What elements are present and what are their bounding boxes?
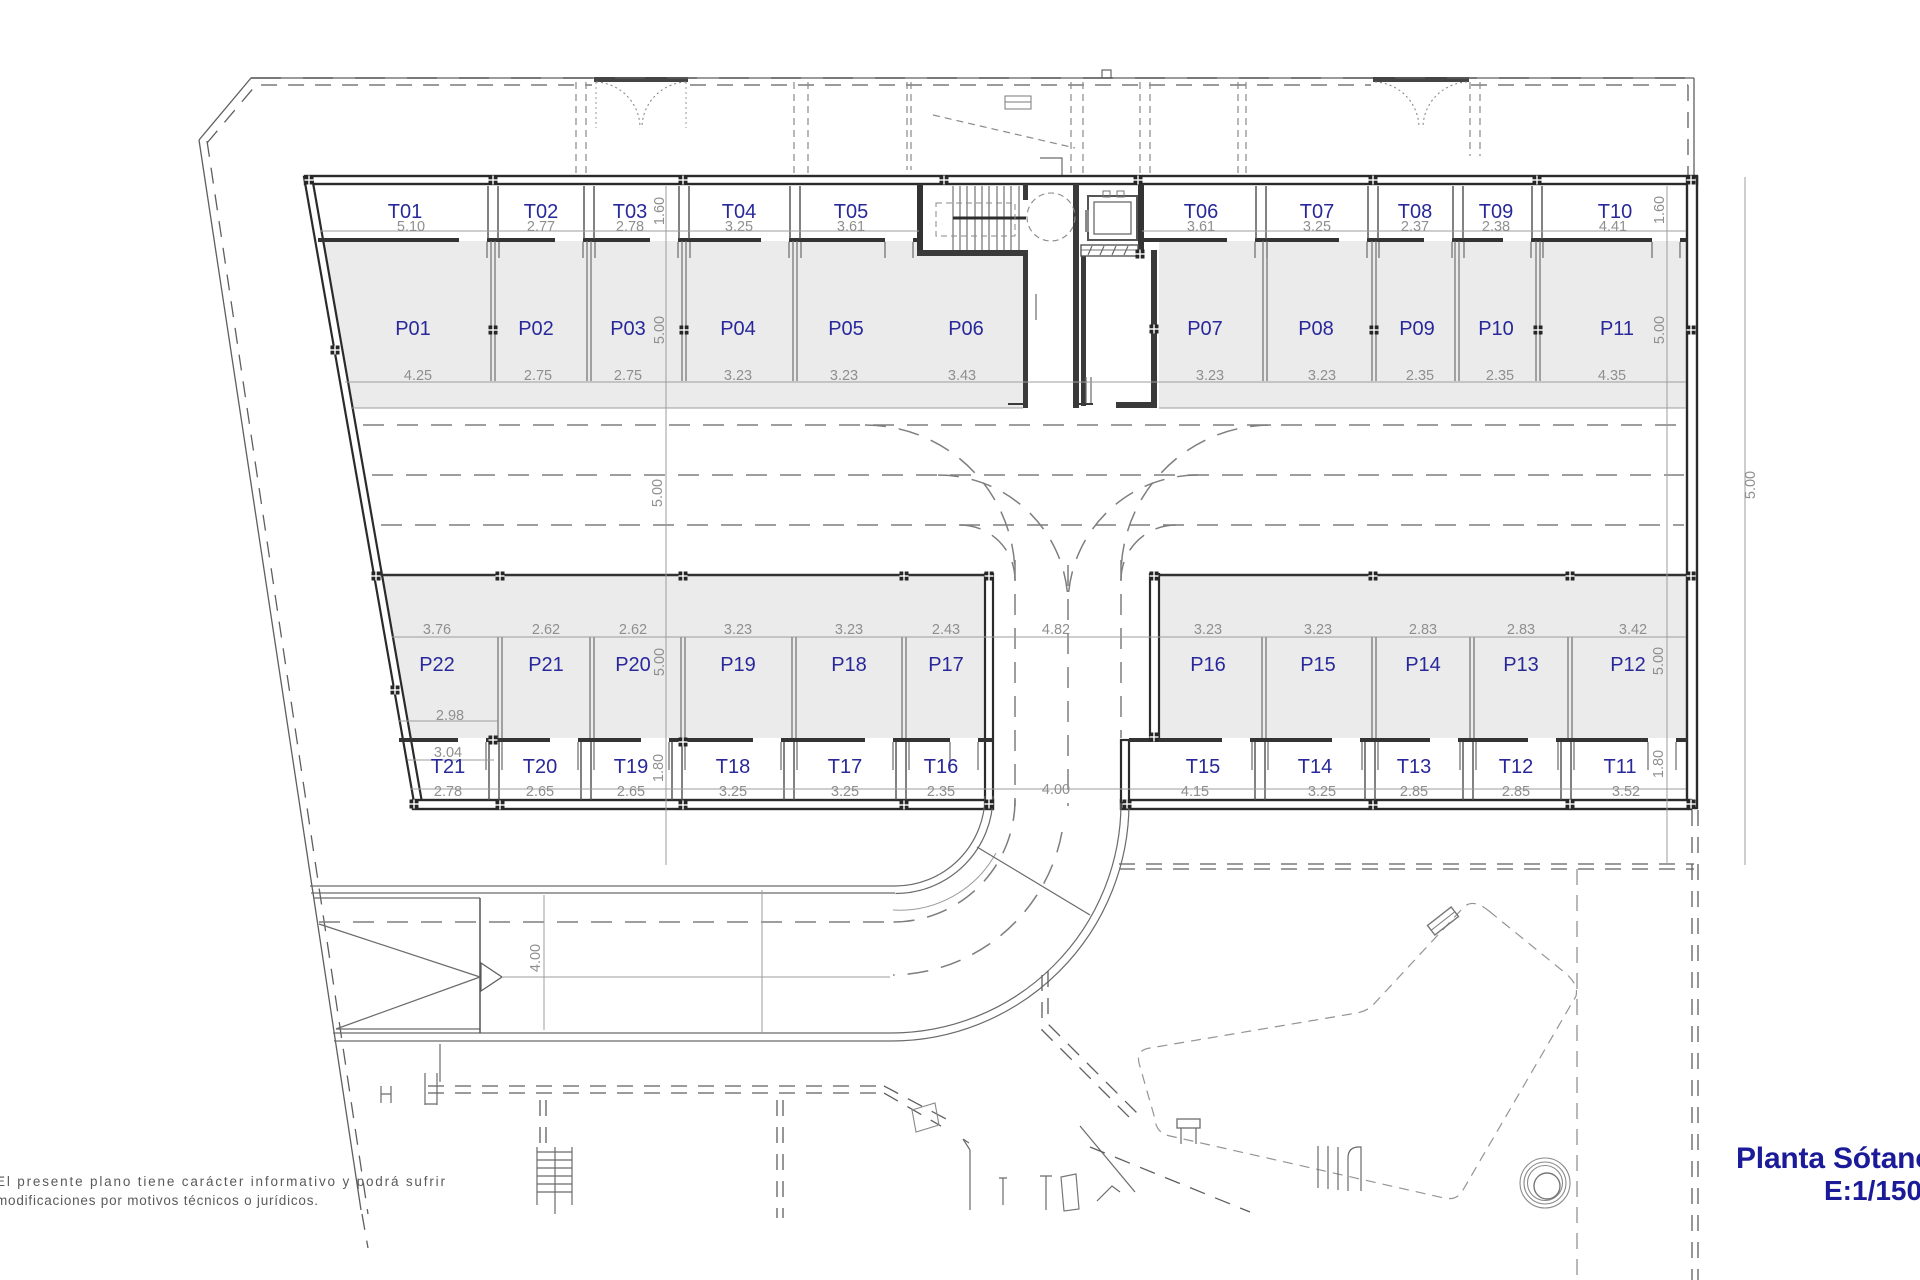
svg-text:P01: P01 — [395, 318, 431, 340]
svg-text:T11: T11 — [1604, 756, 1637, 778]
svg-text:P06: P06 — [948, 318, 984, 340]
svg-text:4.15: 4.15 — [1181, 784, 1209, 800]
svg-text:T21: T21 — [431, 756, 465, 778]
svg-text:2.85: 2.85 — [1400, 784, 1428, 800]
svg-text:3.25: 3.25 — [1303, 219, 1331, 235]
svg-text:3.25: 3.25 — [1308, 784, 1336, 800]
svg-text:P20: P20 — [615, 654, 651, 676]
svg-text:5.00: 5.00 — [1743, 471, 1759, 499]
svg-text:4.35: 4.35 — [1598, 368, 1626, 384]
svg-text:3.43: 3.43 — [948, 368, 976, 384]
svg-text:modificaciones por motivos téc: modificaciones por motivos técnicos o ju… — [0, 1193, 318, 1208]
svg-text:P17: P17 — [928, 654, 964, 676]
svg-text:1.60: 1.60 — [652, 197, 668, 225]
svg-text:3.25: 3.25 — [831, 784, 859, 800]
svg-text:E:1/150: E:1/150 — [1824, 1175, 1920, 1206]
svg-text:2.38: 2.38 — [1482, 219, 1510, 235]
svg-text:P13: P13 — [1503, 654, 1539, 676]
svg-text:Planta Sótano: Planta Sótano — [1736, 1142, 1920, 1175]
svg-text:5.00: 5.00 — [652, 316, 668, 344]
svg-text:P10: P10 — [1478, 318, 1514, 340]
svg-text:T18: T18 — [716, 756, 750, 778]
svg-text:1.80: 1.80 — [651, 754, 667, 782]
svg-text:4.25: 4.25 — [404, 368, 432, 384]
svg-text:5.00: 5.00 — [1652, 316, 1668, 344]
svg-text:5.00: 5.00 — [1651, 647, 1667, 675]
svg-text:3.23: 3.23 — [835, 622, 863, 638]
svg-text:P12: P12 — [1610, 654, 1646, 676]
svg-text:P16: P16 — [1190, 654, 1226, 676]
svg-text:2.62: 2.62 — [532, 622, 560, 638]
svg-text:3.23: 3.23 — [830, 368, 858, 384]
svg-text:3.61: 3.61 — [837, 219, 865, 235]
svg-text:2.77: 2.77 — [527, 219, 555, 235]
svg-text:2.35: 2.35 — [1406, 368, 1434, 384]
svg-text:2.62: 2.62 — [619, 622, 647, 638]
svg-text:3.25: 3.25 — [719, 784, 747, 800]
svg-text:T15: T15 — [1186, 756, 1220, 778]
svg-text:4.41: 4.41 — [1599, 219, 1627, 235]
svg-text:T20: T20 — [523, 756, 557, 778]
svg-text:2.65: 2.65 — [526, 784, 554, 800]
svg-text:5.00: 5.00 — [650, 479, 666, 507]
svg-text:3.61: 3.61 — [1187, 219, 1215, 235]
svg-text:P22: P22 — [419, 654, 455, 676]
svg-text:5.00: 5.00 — [652, 648, 668, 676]
svg-text:3.23: 3.23 — [1194, 622, 1222, 638]
svg-text:2.35: 2.35 — [1486, 368, 1514, 384]
svg-text:3.23: 3.23 — [1304, 622, 1332, 638]
svg-text:T17: T17 — [828, 756, 862, 778]
svg-text:4.00: 4.00 — [528, 944, 544, 972]
svg-text:5.10: 5.10 — [397, 219, 425, 235]
svg-text:P11: P11 — [1600, 318, 1634, 340]
svg-text:2.98: 2.98 — [436, 708, 464, 724]
svg-text:T14: T14 — [1298, 756, 1332, 778]
svg-text:P21: P21 — [528, 654, 564, 676]
svg-text:P15: P15 — [1300, 654, 1336, 676]
svg-text:P08: P08 — [1298, 318, 1334, 340]
svg-text:3.52: 3.52 — [1612, 784, 1640, 800]
svg-text:2.78: 2.78 — [616, 219, 644, 235]
svg-text:2.78: 2.78 — [434, 784, 462, 800]
svg-text:T13: T13 — [1397, 756, 1431, 778]
svg-text:P07: P07 — [1187, 318, 1223, 340]
svg-text:4.82: 4.82 — [1042, 622, 1070, 638]
svg-text:3.23: 3.23 — [724, 622, 752, 638]
svg-text:P19: P19 — [720, 654, 756, 676]
svg-text:3.23: 3.23 — [1196, 368, 1224, 384]
svg-text:1.80: 1.80 — [1651, 750, 1667, 778]
svg-text:4.00: 4.00 — [1042, 782, 1070, 798]
svg-text:1.60: 1.60 — [1652, 196, 1668, 224]
svg-text:3.23: 3.23 — [724, 368, 752, 384]
svg-text:T16: T16 — [924, 756, 958, 778]
svg-text:P09: P09 — [1399, 318, 1435, 340]
svg-text:P18: P18 — [831, 654, 867, 676]
svg-text:P05: P05 — [828, 318, 864, 340]
svg-text:2.75: 2.75 — [524, 368, 552, 384]
svg-text:T19: T19 — [614, 756, 648, 778]
svg-text:2.83: 2.83 — [1507, 622, 1535, 638]
svg-text:2.83: 2.83 — [1409, 622, 1437, 638]
svg-text:2.85: 2.85 — [1502, 784, 1530, 800]
svg-text:3.25: 3.25 — [725, 219, 753, 235]
svg-text:3.76: 3.76 — [423, 622, 451, 638]
svg-text:P14: P14 — [1405, 654, 1441, 676]
svg-text:P04: P04 — [720, 318, 756, 340]
svg-text:3.23: 3.23 — [1308, 368, 1336, 384]
svg-text:2.37: 2.37 — [1401, 219, 1429, 235]
svg-text:2.43: 2.43 — [932, 622, 960, 638]
svg-text:P03: P03 — [610, 318, 646, 340]
svg-text:2.65: 2.65 — [617, 784, 645, 800]
svg-text:2.75: 2.75 — [614, 368, 642, 384]
svg-text:3.42: 3.42 — [1619, 622, 1647, 638]
svg-text:P02: P02 — [518, 318, 554, 340]
svg-text:T12: T12 — [1499, 756, 1533, 778]
svg-text:2.35: 2.35 — [927, 784, 955, 800]
